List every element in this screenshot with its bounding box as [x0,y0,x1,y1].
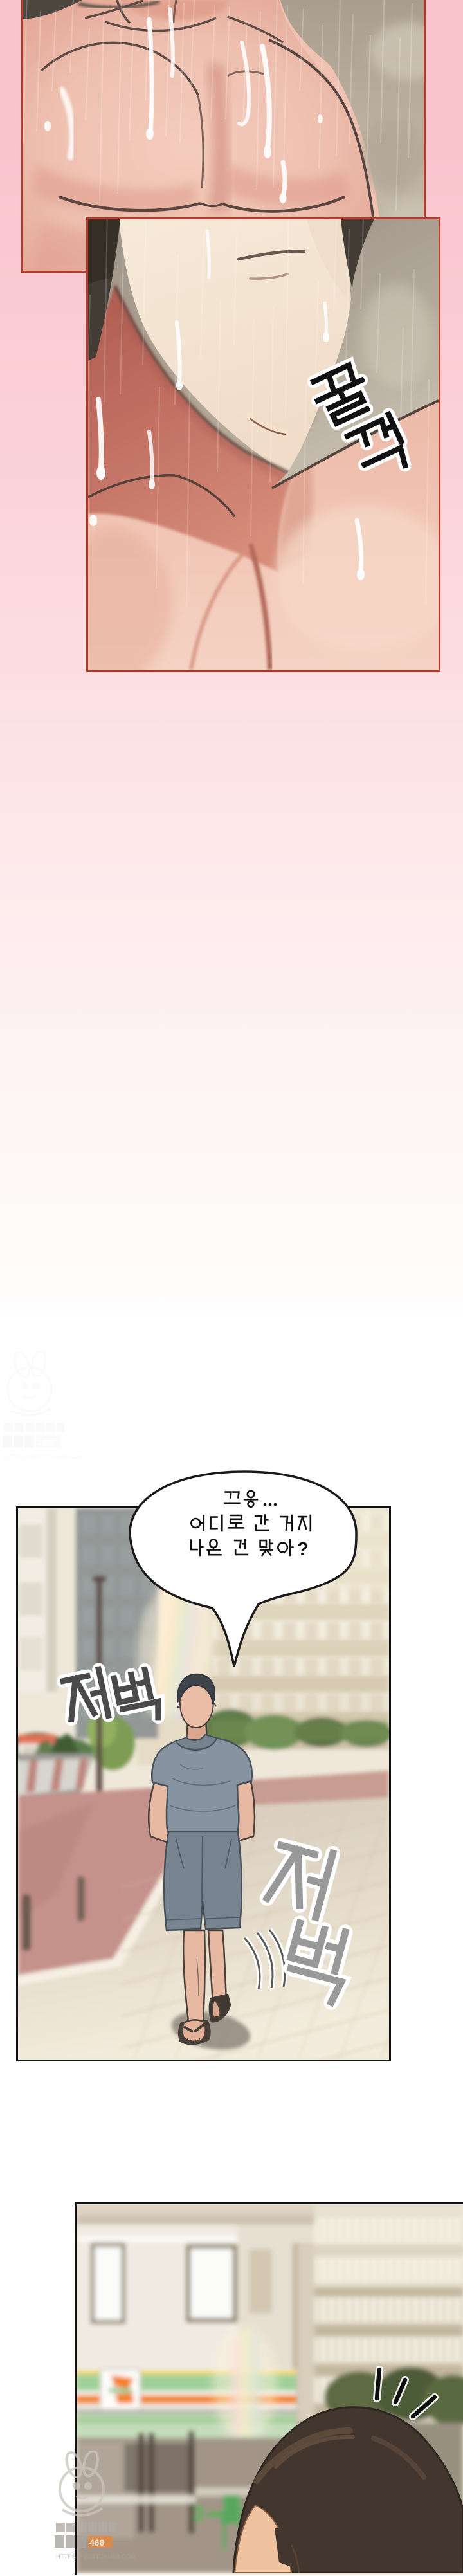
svg-text:HTTPS://NEWTOKI468.COM: HTTPS://NEWTOKI468.COM [4,1454,84,1461]
svg-text:?: ? [297,1539,309,1560]
svg-text:468: 468 [37,1438,53,1448]
svg-text:HTTPS://NEWTOKI468.COM: HTTPS://NEWTOKI468.COM [56,2553,136,2561]
svg-text:3: 3 [192,2501,204,2526]
svg-text:468: 468 [89,2537,105,2548]
